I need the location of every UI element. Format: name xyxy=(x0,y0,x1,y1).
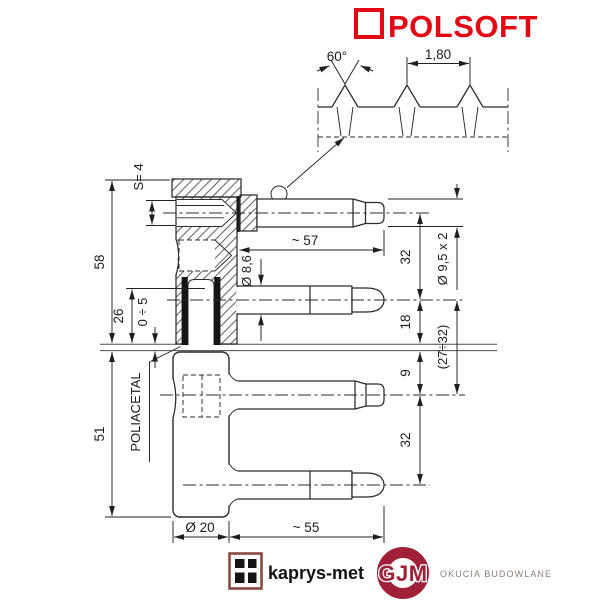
gjm-wordmark: GJM xyxy=(378,561,427,586)
polyacetal-bushing-right xyxy=(214,277,220,345)
lower-hinge-part xyxy=(172,352,384,517)
thread-teeth xyxy=(332,85,483,107)
polsoft-wordmark: POLSOFT xyxy=(388,9,538,44)
dim-pin2-diameter: Ø 8,6 xyxy=(239,255,254,287)
polsoft-square-icon xyxy=(356,10,382,37)
dim-pin-diameter: Ø 9,5 x 2 xyxy=(435,233,450,286)
upper-hinge-part xyxy=(172,179,384,345)
dim-pin-pitch-bottom: 32 xyxy=(398,432,413,447)
detail-leader-line xyxy=(287,138,344,188)
pin2-hole xyxy=(179,240,215,271)
dim-body-diameter: Ø 20 xyxy=(185,520,214,535)
thread-detail-view: 60° 1,80 xyxy=(271,47,508,202)
dim-split-top: 18 xyxy=(398,314,413,329)
thread-roots xyxy=(337,107,478,136)
dim-upper-height: 58 xyxy=(92,254,107,269)
dim-socket-depth: 26 xyxy=(111,308,126,323)
kaprys-met-logo: kaprys-met xyxy=(230,554,365,589)
material-label: POLIACETAL xyxy=(128,372,143,451)
dim-pin-pitch-top: 32 xyxy=(398,249,413,264)
kaprys-wordmark: kaprys-met xyxy=(268,563,364,583)
dim-thread-pitch: 1,80 xyxy=(425,47,451,62)
kaprys-glyph-icon xyxy=(234,559,257,583)
dim-gap: 0 ÷ 5 xyxy=(135,298,150,327)
gjm-logo: GJM OKUCIA BUDOWLANE xyxy=(378,553,552,594)
lower-body xyxy=(173,352,229,517)
dim-range: (27÷32) xyxy=(435,325,450,370)
dim-split-bottom: 9 xyxy=(398,369,413,377)
dim-s: S= 4 xyxy=(131,163,146,190)
polyacetal-bushing-left xyxy=(182,277,188,345)
gjm-subtitle: OKUCIA BUDOWLANE xyxy=(440,569,552,579)
dim-thread-angle: 60° xyxy=(327,49,347,64)
technical-drawing-page: 60° 1,80 xyxy=(0,0,600,600)
dim-pin4-length: ~ 55 xyxy=(293,520,320,535)
dim-pin1-length: ~ 57 xyxy=(292,233,319,248)
upper-flange-section xyxy=(172,179,241,197)
socket-channel xyxy=(188,280,214,346)
angle-arrow-right xyxy=(361,66,374,71)
polsoft-logo: POLSOFT xyxy=(356,9,538,44)
dim-lower-height: 51 xyxy=(92,426,107,441)
angle-arrow-left xyxy=(317,66,330,71)
hinge-technical-drawing: 60° 1,80 xyxy=(0,0,600,600)
